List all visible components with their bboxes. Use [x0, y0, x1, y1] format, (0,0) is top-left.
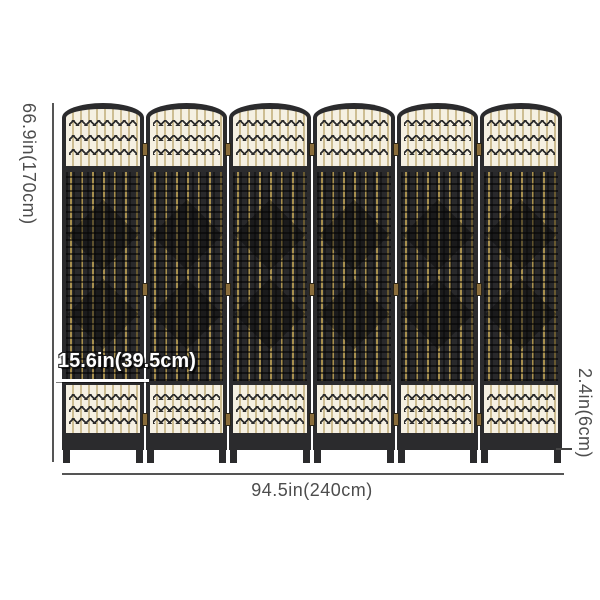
- panel-hinge: [309, 283, 315, 296]
- panel-bottom-rail: [480, 437, 562, 450]
- panel-woven-body: [484, 172, 558, 381]
- wicker-weave-row: [236, 406, 304, 412]
- panel-legs: [480, 450, 562, 463]
- panel-bottom-wicker-section: [484, 385, 558, 433]
- wicker-weave-row: [236, 394, 304, 400]
- panel-hinge: [476, 283, 482, 296]
- panel-hinge: [142, 143, 148, 156]
- wicker-weave-row: [69, 406, 137, 412]
- panel-bottom-wicker-section: [66, 385, 140, 433]
- panel-legs: [62, 450, 144, 463]
- panel-legs: [146, 450, 228, 463]
- wicker-weave-row: [404, 135, 472, 141]
- wicker-weave-row: [153, 120, 221, 126]
- panel-woven-body: [401, 172, 475, 381]
- wicker-weave-row: [236, 120, 304, 126]
- wicker-weave-row: [320, 394, 388, 400]
- panel-woven-body: [317, 172, 391, 381]
- panel-bottom-wicker-section: [233, 385, 307, 433]
- wicker-weave-row: [153, 406, 221, 412]
- panel-woven-body: [233, 172, 307, 381]
- panel-legs: [397, 450, 479, 463]
- wicker-weave-row: [320, 120, 388, 126]
- panel-bottom-rail: [62, 437, 144, 450]
- wicker-weave-row: [69, 394, 137, 400]
- wicker-weave-row: [487, 149, 555, 155]
- panel-hinge: [393, 413, 399, 426]
- total-width-dimension-label: 94.5in(240cm): [62, 480, 562, 501]
- panel-top-wicker-section: [484, 109, 558, 166]
- total-width-dimension-line: [62, 473, 564, 475]
- height-dimension-line: [52, 103, 54, 462]
- panel-hinge: [309, 413, 315, 426]
- divider-panel: [397, 103, 479, 463]
- panel-bottom-frame: [397, 381, 479, 437]
- wicker-weave-row: [320, 406, 388, 412]
- divider-panel: [62, 103, 144, 463]
- wicker-weave-row: [487, 394, 555, 400]
- panel-width-dimension-label: 15.6in(39.5cm): [58, 350, 196, 373]
- wicker-weave-row: [404, 406, 472, 412]
- panel-width-dimension-line: [56, 379, 149, 382]
- panel-hinge: [393, 143, 399, 156]
- panel-bottom-frame: [146, 381, 228, 437]
- wicker-weave-row: [487, 120, 555, 126]
- wicker-weave-row: [153, 135, 221, 141]
- wicker-weave-row: [69, 418, 137, 424]
- panel-arched-top-frame: [313, 103, 395, 172]
- panel-bottom-rail: [146, 437, 228, 450]
- panel-bottom-wicker-section: [317, 385, 391, 433]
- product-dimension-diagram: 66.9in(170cm) 94.5in(240cm) 2.4in(6cm) 1…: [0, 0, 600, 600]
- wicker-weave-row: [320, 135, 388, 141]
- panel-bottom-frame: [313, 381, 395, 437]
- panel-top-wicker-section: [401, 109, 475, 166]
- panel-arched-top-frame: [229, 103, 311, 172]
- panel-hinge: [393, 283, 399, 296]
- panel-bottom-wicker-section: [401, 385, 475, 433]
- wicker-weave-row: [236, 135, 304, 141]
- wicker-weave-row: [487, 418, 555, 424]
- panel-top-wicker-section: [150, 109, 224, 166]
- height-dimension-label: 66.9in(170cm): [18, 103, 39, 443]
- panel-arched-top-frame: [397, 103, 479, 172]
- wicker-weave-row: [69, 135, 137, 141]
- panel-body-frame: [480, 172, 562, 381]
- wicker-weave-row: [404, 149, 472, 155]
- wicker-weave-row: [153, 394, 221, 400]
- wicker-weave-row: [320, 149, 388, 155]
- divider-panel: [480, 103, 562, 463]
- wicker-weave-row: [153, 149, 221, 155]
- divider-panel: [229, 103, 311, 463]
- panel-hinge: [225, 413, 231, 426]
- wicker-weave-row: [404, 120, 472, 126]
- panel-arched-top-frame: [480, 103, 562, 172]
- panel-top-wicker-section: [317, 109, 391, 166]
- panel-hinge: [225, 283, 231, 296]
- panel-bottom-rail: [397, 437, 479, 450]
- wicker-weave-row: [69, 120, 137, 126]
- room-divider: [62, 103, 562, 463]
- panel-bottom-frame: [229, 381, 311, 437]
- panel-bottom-rail: [229, 437, 311, 450]
- wicker-weave-row: [153, 418, 221, 424]
- panel-bottom-wicker-section: [150, 385, 224, 433]
- panel-hinge: [476, 413, 482, 426]
- panel-top-wicker-section: [233, 109, 307, 166]
- leg-height-dimension-label: 2.4in(6cm): [574, 368, 595, 488]
- panel-bottom-frame: [480, 381, 562, 437]
- panel-hinge: [225, 143, 231, 156]
- panel-hinge: [142, 283, 148, 296]
- panel-arched-top-frame: [146, 103, 228, 172]
- panel-legs: [229, 450, 311, 463]
- wicker-weave-row: [69, 149, 137, 155]
- leg-height-dimension-tick: [556, 448, 572, 450]
- wicker-weave-row: [404, 418, 472, 424]
- wicker-weave-row: [404, 394, 472, 400]
- panel-hinge: [309, 143, 315, 156]
- panel-hinge: [142, 413, 148, 426]
- wicker-weave-row: [236, 149, 304, 155]
- wicker-weave-row: [487, 135, 555, 141]
- panel-body-frame: [313, 172, 395, 381]
- wicker-weave-row: [487, 406, 555, 412]
- divider-panel: [313, 103, 395, 463]
- wicker-weave-row: [236, 418, 304, 424]
- divider-panel: [146, 103, 228, 463]
- wicker-weave-row: [320, 418, 388, 424]
- panel-arched-top-frame: [62, 103, 144, 172]
- panel-legs: [313, 450, 395, 463]
- panel-body-frame: [229, 172, 311, 381]
- panel-bottom-rail: [313, 437, 395, 450]
- panel-top-wicker-section: [66, 109, 140, 166]
- panel-bottom-frame: [62, 381, 144, 437]
- panel-body-frame: [397, 172, 479, 381]
- panel-hinge: [476, 143, 482, 156]
